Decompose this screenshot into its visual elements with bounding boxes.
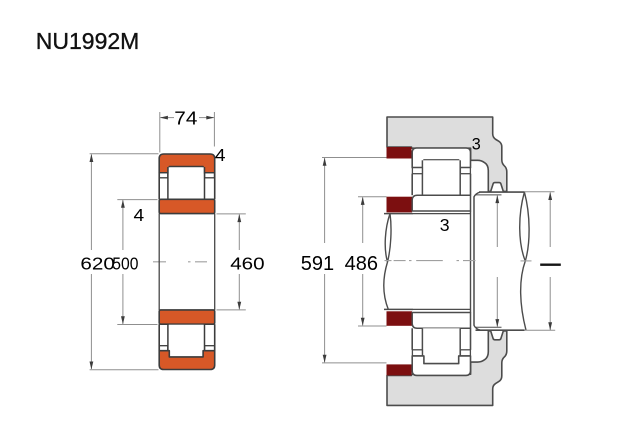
svg-text:486: 486 — [345, 253, 378, 275]
svg-text:4: 4 — [215, 145, 226, 165]
svg-text:500: 500 — [112, 255, 138, 274]
svg-text:460: 460 — [230, 255, 264, 274]
svg-text:3: 3 — [440, 215, 450, 235]
svg-text:74: 74 — [174, 108, 197, 129]
svg-text:4: 4 — [134, 205, 145, 225]
svg-text:3: 3 — [472, 136, 481, 154]
svg-text:NU1992M: NU1992M — [36, 28, 140, 54]
svg-text:591: 591 — [301, 253, 334, 275]
svg-text:620: 620 — [80, 255, 114, 274]
